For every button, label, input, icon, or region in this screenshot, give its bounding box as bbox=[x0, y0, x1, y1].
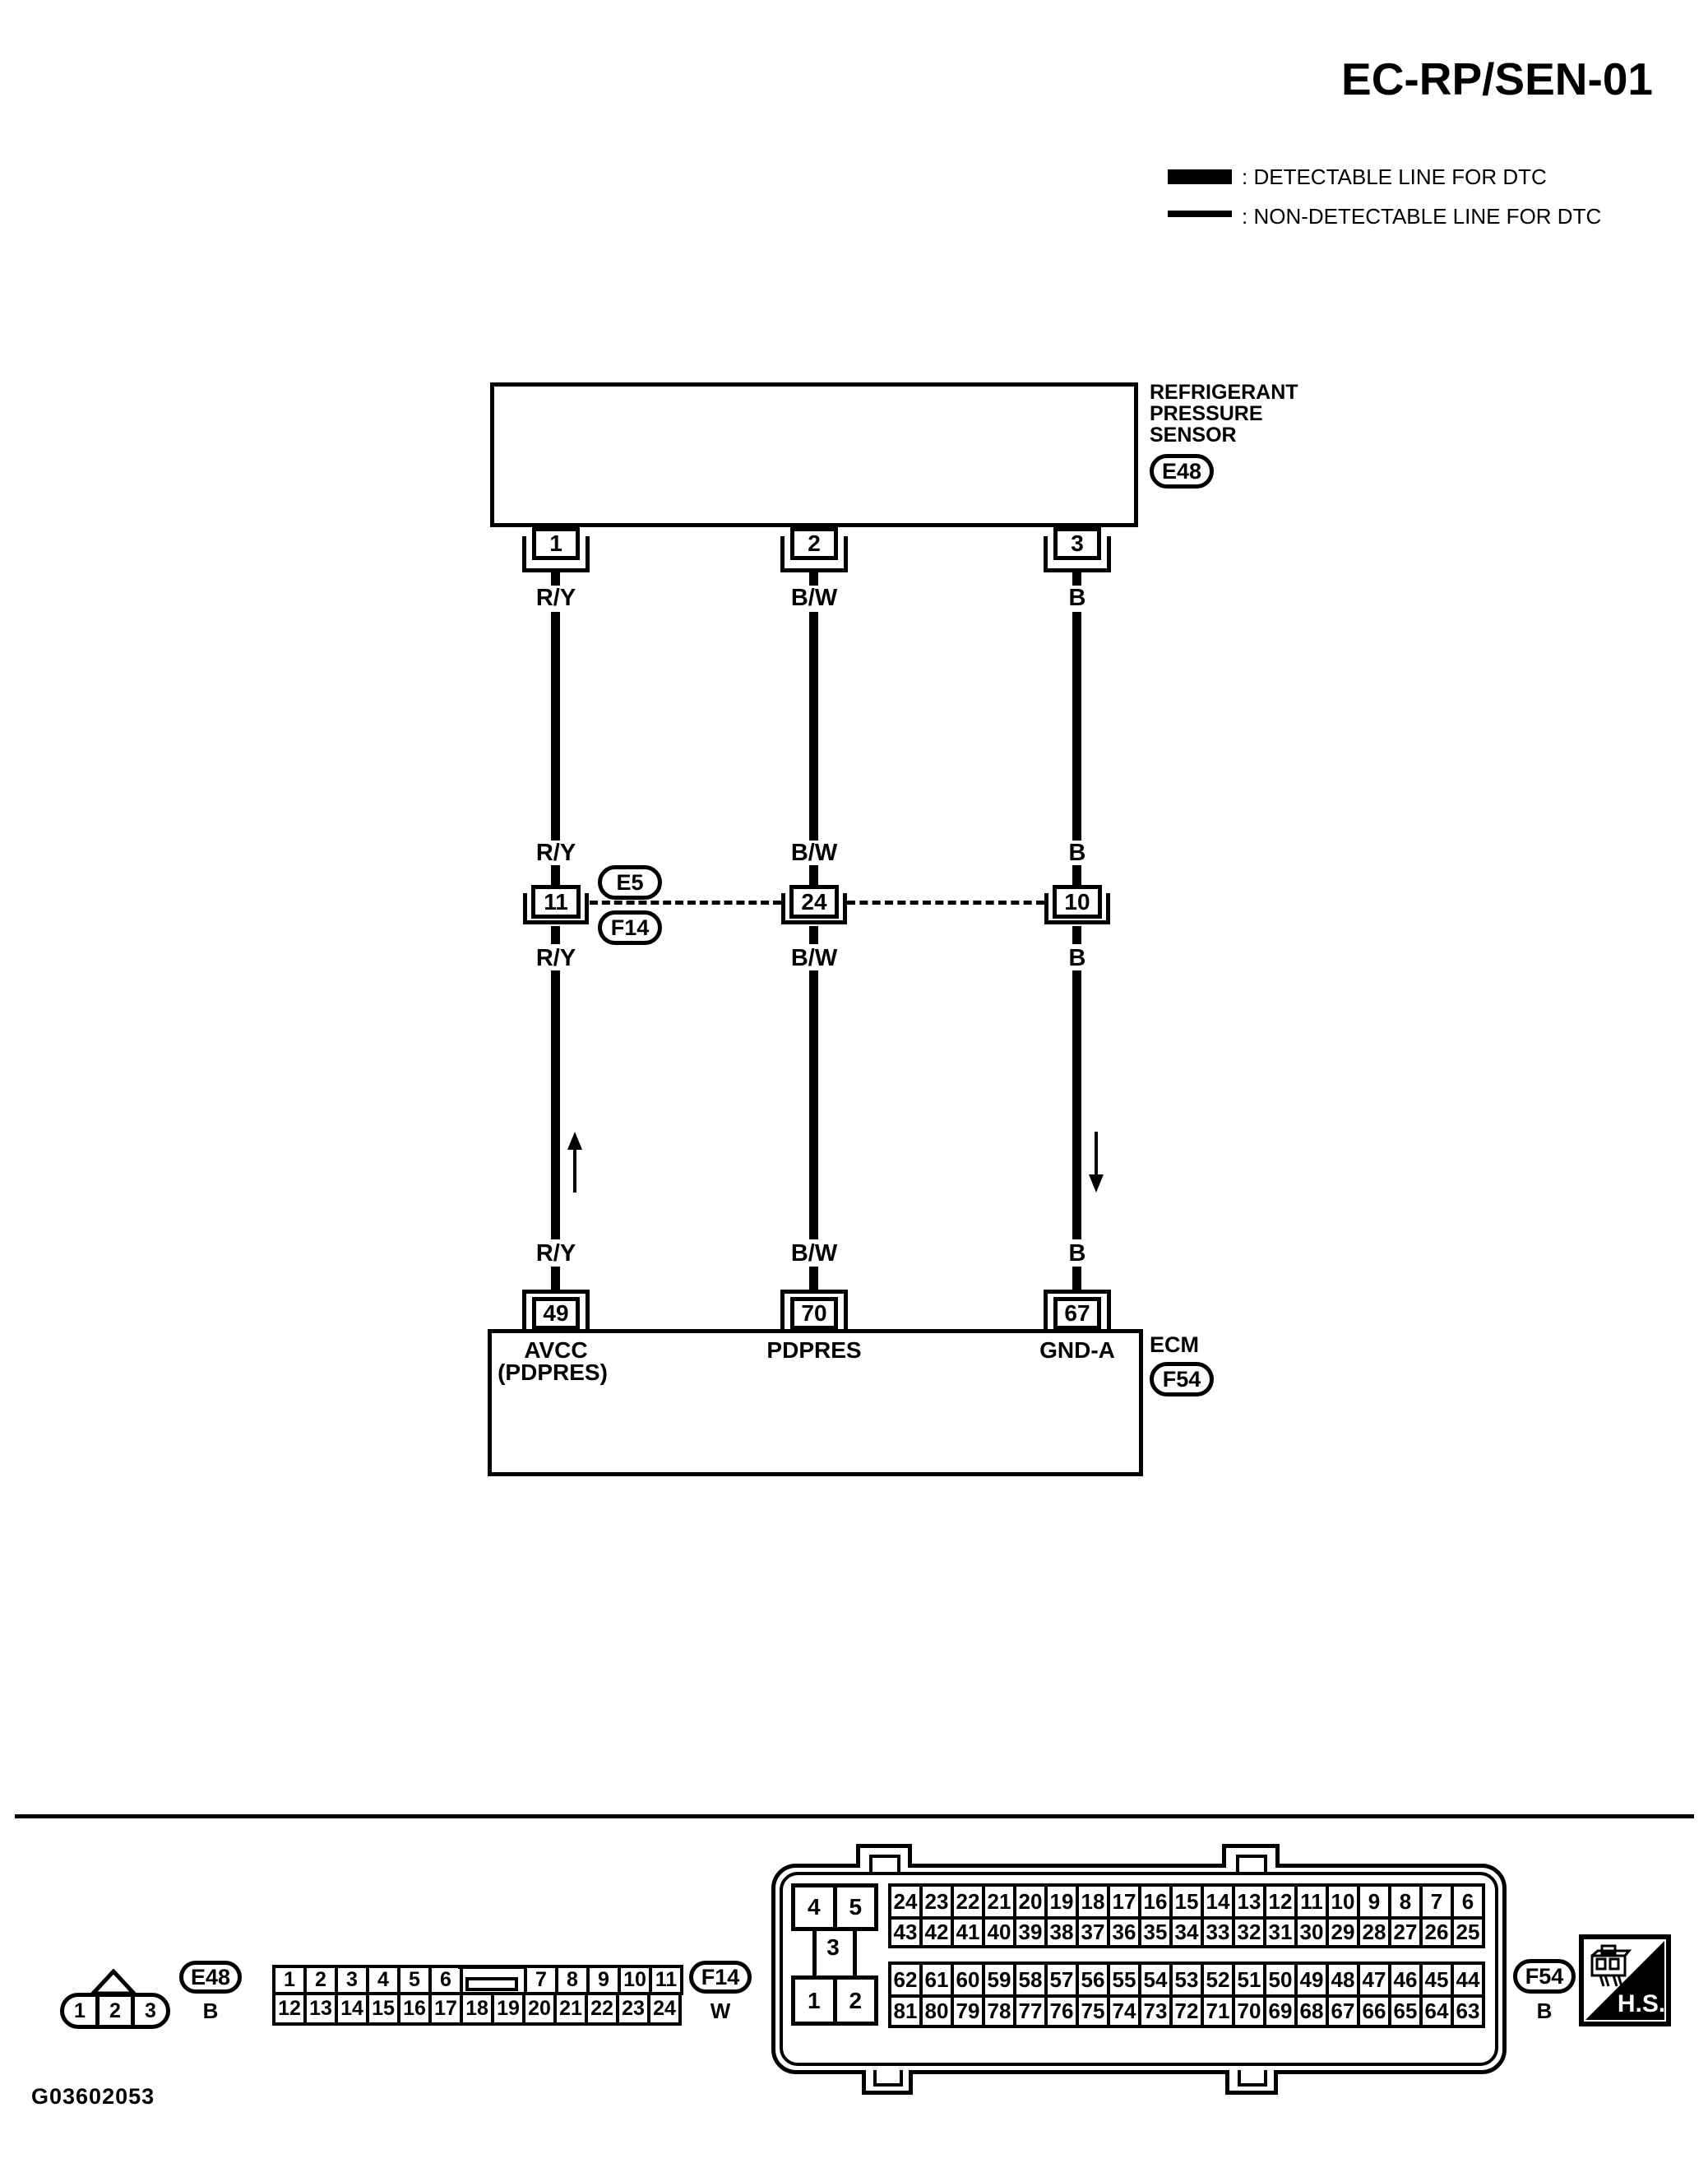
grid-cell: 15 bbox=[1169, 1883, 1204, 1920]
grid-cell: 1 bbox=[64, 1997, 95, 2025]
grid-cell: 52 bbox=[1201, 1962, 1235, 1998]
wire-color-label: B/W bbox=[765, 944, 863, 972]
grid-cell: 21 bbox=[982, 1883, 1016, 1920]
wire-color-label: B/W bbox=[765, 839, 863, 867]
grid-cell: 36 bbox=[1107, 1916, 1141, 1948]
f14-row1-left: 123456 bbox=[272, 1965, 463, 1995]
grid-cell: 18 bbox=[460, 1992, 494, 2026]
grid-cell: 11 bbox=[1294, 1883, 1329, 1920]
f14-wire-color: W bbox=[697, 1999, 743, 2024]
grid-cell: 57 bbox=[1044, 1962, 1079, 1998]
inline-connector-id-below: F14 bbox=[598, 910, 662, 945]
grid-cell: 29 bbox=[1326, 1916, 1360, 1948]
grid-cell: 51 bbox=[1232, 1962, 1266, 1998]
f54-grid-row4: 81807978777675747372717069686766656463 bbox=[888, 1994, 1485, 2028]
grid-cell: 77 bbox=[1013, 1994, 1048, 2028]
grid-cell: 12 bbox=[272, 1992, 307, 2026]
grid-cell: 24 bbox=[888, 1883, 923, 1920]
grid-cell: 35 bbox=[1138, 1916, 1173, 1948]
grid-cell: 20 bbox=[522, 1992, 557, 2026]
grid-cell: 14 bbox=[1201, 1883, 1235, 1920]
grid-cell: 2 bbox=[303, 1965, 338, 1995]
grid-cell: 28 bbox=[1357, 1916, 1391, 1948]
grid-cell: 79 bbox=[951, 1994, 985, 2028]
grid-cell: 27 bbox=[1388, 1916, 1423, 1948]
ecm-pin-box: 49 bbox=[532, 1297, 580, 1330]
grid-cell: 47 bbox=[1357, 1962, 1391, 1998]
f14-row2: 12131415161718192021222324 bbox=[272, 1992, 682, 2026]
wire-segment bbox=[809, 970, 818, 1239]
f14-row1-right: 7891011 bbox=[524, 1965, 683, 1995]
grid-cell: 37 bbox=[1076, 1916, 1110, 1948]
grid-cell: 67 bbox=[1326, 1994, 1360, 2028]
grid-cell: 65 bbox=[1388, 1994, 1423, 2028]
wire-color-label: B bbox=[1028, 1239, 1127, 1267]
grid-cell: 23 bbox=[919, 1883, 954, 1920]
grid-cell: 38 bbox=[1044, 1916, 1079, 1948]
grid-cell: 74 bbox=[1107, 1994, 1141, 2028]
f54-top-tab bbox=[1222, 1844, 1280, 1868]
hs-mark-text: H.S. bbox=[1618, 1990, 1665, 2017]
wire-color-label: B/W bbox=[765, 1239, 863, 1267]
grid-cell: 25 bbox=[1451, 1916, 1485, 1948]
grid-cell: 50 bbox=[1263, 1962, 1298, 1998]
grid-cell: 32 bbox=[1232, 1916, 1266, 1948]
e48-wire-color: B bbox=[187, 1999, 234, 2024]
e48-connector-id-badge: E48 bbox=[179, 1961, 242, 1994]
grid-cell: 1 bbox=[272, 1965, 307, 1995]
ecm-signal-name: GND-A bbox=[995, 1337, 1159, 1364]
wire-color-label: R/Y bbox=[507, 944, 605, 972]
grid-cell: 34 bbox=[1169, 1916, 1204, 1948]
grid-cell: 75 bbox=[1076, 1994, 1110, 2028]
f54-grid-row3: 62616059585756555453525150494847464544 bbox=[888, 1962, 1485, 1998]
f54-grid-row2: 43424140393837363534333231302928272625 bbox=[888, 1916, 1485, 1948]
grid-cell: 9 bbox=[586, 1965, 621, 1995]
grid-cell: 33 bbox=[1201, 1916, 1235, 1948]
wire-color-label: B bbox=[1028, 839, 1127, 867]
f54-grid-row1: 2423222120191817161514131211109876 bbox=[888, 1883, 1485, 1920]
grid-cell: 13 bbox=[303, 1992, 338, 2026]
legend-non-detectable-line-swatch bbox=[1168, 211, 1232, 217]
grid-cell: 7 bbox=[524, 1965, 558, 1995]
ecm-pin-box: 67 bbox=[1053, 1297, 1101, 1330]
ecm-connector-id-badge: F54 bbox=[1150, 1362, 1214, 1396]
f54-left-block-link bbox=[853, 1929, 857, 1979]
inline-connector-dashed-line bbox=[590, 901, 781, 905]
grid-cell: 66 bbox=[1357, 1994, 1391, 2028]
sensor-pin-box: 1 bbox=[532, 527, 580, 560]
grid-cell: 30 bbox=[1294, 1916, 1329, 1948]
sensor-name-line3: SENSOR bbox=[1150, 424, 1298, 446]
f54-left-block-top: 45 bbox=[791, 1883, 878, 1931]
f54-connector-id-badge: F54 bbox=[1513, 1959, 1576, 1994]
wire-segment bbox=[1072, 612, 1081, 841]
e48-connector-face: 123 bbox=[60, 1993, 170, 2029]
grid-cell: 69 bbox=[1263, 1994, 1298, 2028]
grid-cell: 14 bbox=[335, 1992, 369, 2026]
grid-cell: 78 bbox=[982, 1994, 1016, 2028]
grid-cell: 46 bbox=[1388, 1962, 1423, 1998]
grid-cell: 19 bbox=[1044, 1883, 1079, 1920]
grid-cell: 18 bbox=[1076, 1883, 1110, 1920]
grid-cell: 3 bbox=[131, 1997, 166, 2025]
wire-segment bbox=[551, 612, 560, 841]
grid-cell: 22 bbox=[585, 1992, 619, 2026]
wire-segment bbox=[809, 612, 818, 841]
grid-cell: 8 bbox=[555, 1965, 590, 1995]
f54-bottom-tab bbox=[1225, 2070, 1278, 2095]
wire-segment bbox=[809, 926, 818, 944]
grid-cell: 56 bbox=[1076, 1962, 1110, 1998]
grid-cell: 23 bbox=[616, 1992, 650, 2026]
grid-cell: 16 bbox=[397, 1992, 432, 2026]
grid-cell: 59 bbox=[982, 1962, 1016, 1998]
grid-cell: 55 bbox=[1107, 1962, 1141, 1998]
flow-arrow-up bbox=[567, 1132, 582, 1193]
wire-segment bbox=[551, 865, 560, 887]
grid-cell: 70 bbox=[1232, 1994, 1266, 2028]
grid-cell: 7 bbox=[1419, 1883, 1454, 1920]
f14-key-slot bbox=[465, 1977, 518, 1991]
grid-cell: 4 bbox=[366, 1965, 400, 1995]
wire-segment bbox=[551, 926, 560, 944]
ecm-pin-box: 70 bbox=[790, 1297, 838, 1330]
grid-cell: 11 bbox=[649, 1965, 683, 1995]
grid-cell: 8 bbox=[1388, 1883, 1423, 1920]
grid-cell: 58 bbox=[1013, 1962, 1048, 1998]
grid-cell: 73 bbox=[1138, 1994, 1173, 2028]
grid-cell: 80 bbox=[919, 1994, 954, 2028]
ecm-signal-subname: (PDPRES) bbox=[470, 1359, 635, 1386]
grid-cell: 53 bbox=[1169, 1962, 1204, 1998]
grid-cell: 10 bbox=[1326, 1883, 1360, 1920]
inline-connector-id-above: E5 bbox=[598, 865, 662, 900]
grid-cell: 39 bbox=[1013, 1916, 1048, 1948]
grid-cell: 15 bbox=[366, 1992, 400, 2026]
figure-code: G03602053 bbox=[31, 2084, 155, 2110]
grid-cell: 5 bbox=[397, 1965, 432, 1995]
inline-pin-box: 11 bbox=[531, 885, 581, 919]
grid-cell: 72 bbox=[1169, 1994, 1204, 2028]
wire-color-label: B bbox=[1028, 944, 1127, 972]
grid-cell: 63 bbox=[1451, 1994, 1485, 2028]
grid-cell: 2 bbox=[833, 1980, 875, 2022]
grid-cell: 17 bbox=[1107, 1883, 1141, 1920]
grid-cell: 17 bbox=[428, 1992, 463, 2026]
wiring-diagram-page: EC-RP/SEN-01 : DETECTABLE LINE FOR DTC :… bbox=[0, 0, 1708, 2163]
grid-cell: 2 bbox=[95, 1997, 131, 2025]
legend-non-detectable-label: : NON-DETECTABLE LINE FOR DTC bbox=[1242, 204, 1601, 229]
inline-pin-box: 10 bbox=[1053, 885, 1102, 919]
grid-cell: 22 bbox=[951, 1883, 985, 1920]
f54-wire-color: B bbox=[1521, 1999, 1567, 2024]
wire-color-label: B/W bbox=[765, 584, 863, 612]
wire-segment bbox=[1072, 865, 1081, 887]
f14-connector-id-badge: F14 bbox=[689, 1961, 752, 1994]
inline-connector-dashed-line bbox=[847, 901, 1044, 905]
grid-cell: 20 bbox=[1013, 1883, 1048, 1920]
grid-cell: 19 bbox=[491, 1992, 525, 2026]
sensor-pin-box: 3 bbox=[1053, 527, 1101, 560]
grid-cell: 62 bbox=[888, 1962, 923, 1998]
grid-cell: 16 bbox=[1138, 1883, 1173, 1920]
grid-cell: 48 bbox=[1326, 1962, 1360, 1998]
wire-segment bbox=[809, 1267, 818, 1291]
grid-cell: 9 bbox=[1357, 1883, 1391, 1920]
wire-color-label: R/Y bbox=[507, 1239, 605, 1267]
grid-cell: 68 bbox=[1294, 1994, 1329, 2028]
sensor-name-line2: PRESSURE bbox=[1150, 403, 1298, 424]
grid-cell: 40 bbox=[982, 1916, 1016, 1948]
wire-segment bbox=[1072, 1267, 1081, 1291]
flow-arrow-down bbox=[1089, 1132, 1104, 1193]
wire-segment bbox=[1072, 926, 1081, 944]
inline-pin-box: 24 bbox=[789, 885, 839, 919]
wire-segment bbox=[551, 1267, 560, 1291]
grid-cell: 6 bbox=[428, 1965, 463, 1995]
grid-cell: 44 bbox=[1451, 1962, 1485, 1998]
section-divider bbox=[15, 1814, 1694, 1818]
grid-cell: 71 bbox=[1201, 1994, 1235, 2028]
sensor-box bbox=[490, 382, 1138, 527]
sensor-name-line1: REFRIGERANT bbox=[1150, 382, 1298, 403]
page-title: EC-RP/SEN-01 bbox=[987, 53, 1653, 105]
legend-detectable-label: : DETECTABLE LINE FOR DTC bbox=[1242, 164, 1547, 190]
grid-cell: 10 bbox=[618, 1965, 652, 1995]
grid-cell: 3 bbox=[335, 1965, 369, 1995]
grid-cell: 6 bbox=[1451, 1883, 1485, 1920]
grid-cell: 76 bbox=[1044, 1994, 1079, 2028]
wire-segment bbox=[551, 970, 560, 1239]
f14-top-edge bbox=[458, 1965, 527, 1969]
grid-cell: 26 bbox=[1419, 1916, 1454, 1948]
grid-cell: 41 bbox=[951, 1916, 985, 1948]
f54-left-block-mid-pin: 3 bbox=[816, 1934, 850, 1961]
sensor-pin-box: 2 bbox=[790, 527, 838, 560]
harness-side-view-icon: H.S. bbox=[1579, 1934, 1671, 2026]
grid-cell: 64 bbox=[1419, 1994, 1454, 2028]
grid-cell: 31 bbox=[1263, 1916, 1298, 1948]
grid-cell: 1 bbox=[795, 1980, 833, 2022]
f54-top-tab bbox=[856, 1844, 912, 1868]
wire-color-label: B bbox=[1028, 584, 1127, 612]
grid-cell: 54 bbox=[1138, 1962, 1173, 1998]
f54-left-block-bottom: 12 bbox=[791, 1975, 878, 2026]
grid-cell: 45 bbox=[1419, 1962, 1454, 1998]
grid-cell: 5 bbox=[833, 1887, 875, 1927]
grid-cell: 60 bbox=[951, 1962, 985, 1998]
grid-cell: 24 bbox=[647, 1992, 682, 2026]
grid-cell: 81 bbox=[888, 1994, 923, 2028]
legend-detectable-line-swatch bbox=[1168, 169, 1232, 184]
grid-cell: 43 bbox=[888, 1916, 923, 1948]
wire-color-label: R/Y bbox=[507, 584, 605, 612]
wire-segment bbox=[1072, 970, 1081, 1239]
grid-cell: 13 bbox=[1232, 1883, 1266, 1920]
grid-cell: 49 bbox=[1294, 1962, 1329, 1998]
grid-cell: 12 bbox=[1263, 1883, 1298, 1920]
f54-bottom-tab bbox=[862, 2070, 913, 2095]
ecm-signal-name: PDPRES bbox=[732, 1337, 896, 1364]
sensor-connector-id-badge: E48 bbox=[1150, 454, 1214, 489]
grid-cell: 42 bbox=[919, 1916, 954, 1948]
grid-cell: 21 bbox=[553, 1992, 588, 2026]
wire-segment bbox=[809, 865, 818, 887]
grid-cell: 4 bbox=[795, 1887, 833, 1927]
grid-cell: 61 bbox=[919, 1962, 954, 1998]
wire-color-label: R/Y bbox=[507, 839, 605, 867]
